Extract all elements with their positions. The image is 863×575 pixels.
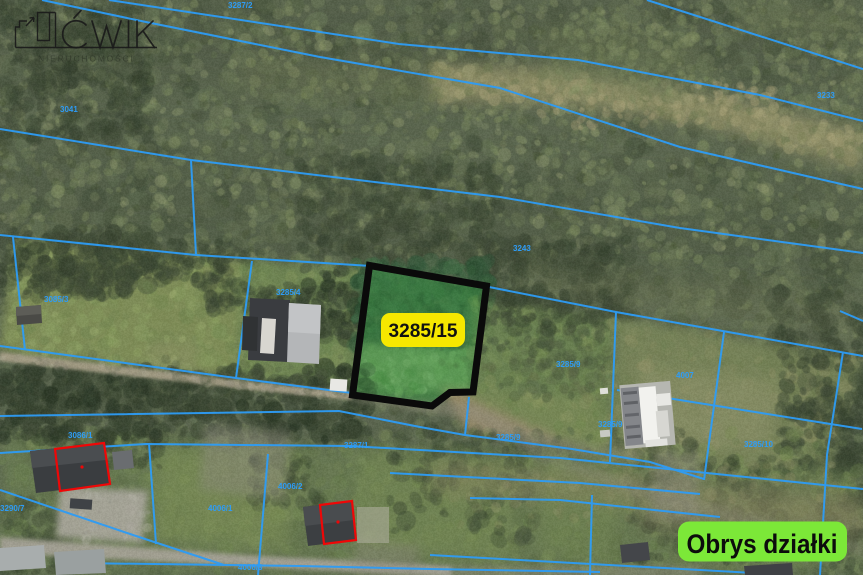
svg-text:3233: 3233: [817, 91, 835, 100]
svg-text:3285/4: 3285/4: [276, 288, 301, 297]
svg-text:3285/9: 3285/9: [496, 433, 521, 442]
svg-text:3041: 3041: [60, 105, 78, 114]
svg-text:4006/3: 4006/3: [238, 563, 263, 572]
svg-text:3285/15: 3285/15: [389, 320, 458, 342]
svg-text:4006/1: 4006/1: [208, 504, 233, 513]
svg-text:NIERUCHOMOŚCI: NIERUCHOMOŚCI: [38, 53, 135, 64]
svg-text:3085/3: 3085/3: [44, 295, 69, 304]
svg-text:3243: 3243: [513, 244, 531, 253]
svg-text:3086/1: 3086/1: [68, 431, 93, 440]
svg-text:3285/9: 3285/9: [598, 420, 623, 429]
svg-text:Obrys działki: Obrys działki: [687, 529, 838, 559]
svg-text:3285/10: 3285/10: [744, 440, 773, 449]
svg-text:3290/7: 3290/7: [0, 504, 25, 513]
svg-text:4007: 4007: [676, 371, 694, 380]
svg-text:3287/2: 3287/2: [228, 1, 253, 10]
svg-text:3287/1: 3287/1: [344, 441, 369, 450]
svg-text:4006/2: 4006/2: [278, 482, 303, 491]
svg-text:3285/9: 3285/9: [556, 360, 581, 369]
